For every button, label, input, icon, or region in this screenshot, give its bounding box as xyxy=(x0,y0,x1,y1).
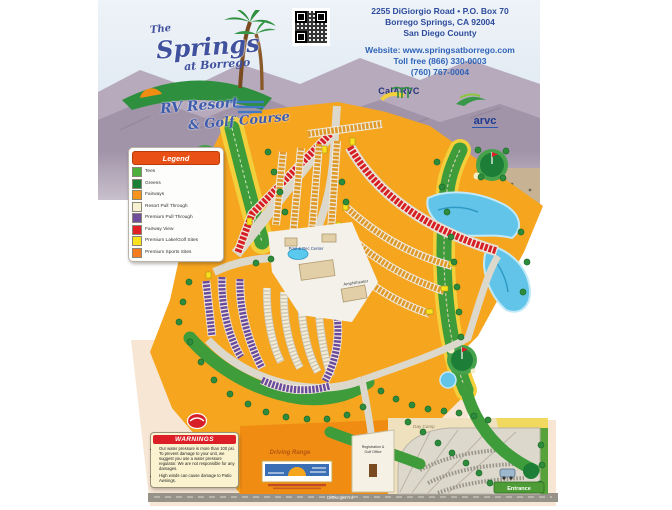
legend-label: Resort Pull Through xyxy=(145,204,188,209)
legend-swatch xyxy=(132,213,142,223)
pool-label: Pool & Rec Center xyxy=(289,246,324,251)
road-label: DiGiorgio Rd xyxy=(327,495,354,500)
legend-label: Premium Pull Through xyxy=(145,215,193,220)
legend-swatch xyxy=(132,202,142,212)
registration-building: Registration & Golf Office xyxy=(352,430,394,492)
calarvc-logo: CalARVC xyxy=(368,86,430,96)
legend-item-premium-sports: Premium Sports Sites xyxy=(132,248,220,258)
legend-label: Premium Lake/Golf Sites xyxy=(145,238,198,243)
legend-swatch xyxy=(132,225,142,235)
warning-item: Our water pressure is more than 100 psi.… xyxy=(159,446,236,471)
legend-label: Fairways xyxy=(145,192,164,197)
legend-swatch xyxy=(132,190,142,200)
qr-finder-icon xyxy=(315,11,327,23)
legend-item-resort-pull-through: Resort Pull Through xyxy=(132,202,220,212)
driving-range-label: Driving Range xyxy=(270,450,311,456)
address-line-2: Borrego Springs, CA 92004 xyxy=(330,17,550,28)
legend-item-premium-lake-golf: Premium Lake/Golf Sites xyxy=(132,236,220,246)
brochure-page: Pool & Rec Center Amphitheater Registrat… xyxy=(0,0,672,510)
warnings-list: Our water pressure is more than 100 psi.… xyxy=(159,446,236,483)
entrance-label: Entrance xyxy=(507,486,531,492)
qr-finder-icon xyxy=(295,31,307,43)
address-line-3: San Diego County xyxy=(330,28,550,39)
arvc-art-icon xyxy=(450,92,520,106)
legend-label: Fairway View xyxy=(145,227,173,232)
legend-label: Tees xyxy=(145,169,155,174)
legend-swatch xyxy=(132,236,142,246)
legend-item-greens: Greens xyxy=(132,179,220,189)
legend-label: Greens xyxy=(145,181,161,186)
warnings-box: WARNINGS Our water pressure is more than… xyxy=(150,432,239,488)
arvc-name: arvc xyxy=(472,115,499,128)
registration-label-2: Golf Office xyxy=(365,450,382,454)
arvc-logo: arvc xyxy=(450,92,520,129)
calarvc-art-icon xyxy=(368,86,430,102)
legend-swatch xyxy=(132,167,142,177)
map-publisher-logo xyxy=(262,461,332,489)
qr-finder-icon xyxy=(295,11,307,23)
website-link[interactable]: Website: www.springsatborrego.com xyxy=(330,45,550,56)
resort-logo: The Springs at Borrego RV Resort & Golf … xyxy=(112,10,292,135)
phone-local: (760) 767-0004 xyxy=(330,67,550,78)
legend-swatch xyxy=(132,179,142,189)
contact-block: 2255 DiGiorgio Road • P.O. Box 70 Borreg… xyxy=(330,6,550,78)
legend-label: Premium Sports Sites xyxy=(145,250,191,255)
legend-title: Legend xyxy=(132,151,220,165)
legend-item-fairway-view: Fairway View xyxy=(132,225,220,235)
legend-item-fairways: Fairways xyxy=(132,190,220,200)
warning-item: High winds can cause damage to Patio Awn… xyxy=(159,473,236,483)
warnings-title: WARNINGS xyxy=(153,435,236,444)
address-line-1: 2255 DiGiorgio Road • P.O. Box 70 xyxy=(330,6,550,17)
qr-code xyxy=(292,8,330,46)
legend-swatch xyxy=(132,248,142,258)
legend-item-premium-pull-through: Premium Pull Through xyxy=(132,213,220,223)
registration-label-1: Registration & xyxy=(362,445,385,449)
map-legend: Legend Tees Greens Fairways Resort Pull … xyxy=(128,147,224,262)
phone-tollfree: Toll free (866) 330-0003 xyxy=(330,56,550,67)
day-camp-label: Day Camp xyxy=(413,424,435,429)
legend-item-tees: Tees xyxy=(132,167,220,177)
club-logo xyxy=(188,414,207,429)
